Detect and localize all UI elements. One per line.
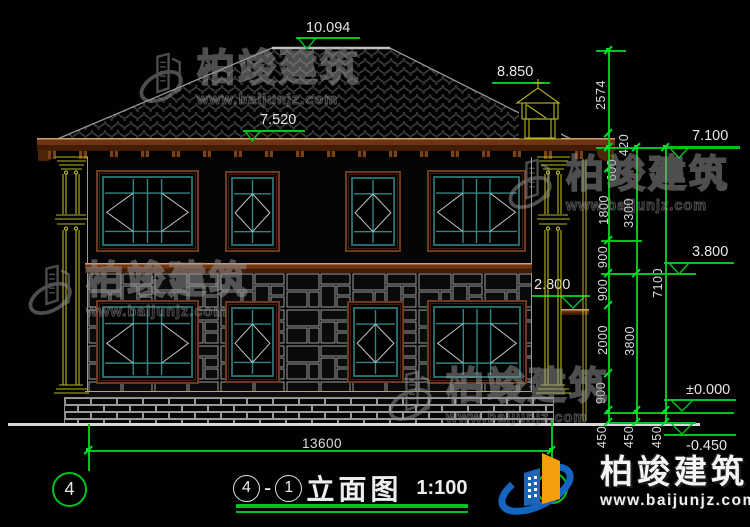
dim-line [601, 273, 696, 275]
brand-building-icon [490, 447, 592, 517]
dim-node [86, 448, 90, 452]
axis-circle-left: 4 [52, 472, 87, 507]
dim-line [596, 50, 626, 52]
dim-node [634, 410, 638, 414]
dim-node [606, 145, 610, 149]
dim-line [596, 147, 740, 149]
brand-logo: 柏竣建筑 www.baijunjz.com [490, 447, 750, 517]
dim-node [606, 48, 610, 52]
cad-elevation-drawing: 10.094 7.520 8.850 7.100 3.800 2.800 ±0.… [0, 0, 750, 527]
dim-chain-outer [665, 147, 667, 422]
brand-name: 柏竣建筑 [600, 455, 750, 488]
dim-line [609, 422, 696, 424]
dim-node [606, 410, 610, 414]
dim-line [609, 412, 734, 414]
dim-node [663, 145, 667, 149]
dim-node [634, 145, 638, 149]
dim-node [663, 410, 667, 414]
dim-line [88, 450, 551, 452]
axis-left-label: 4 [64, 479, 74, 500]
dim-chain-mid [636, 147, 638, 422]
brand-site: www.baijunjz.com [600, 492, 750, 510]
